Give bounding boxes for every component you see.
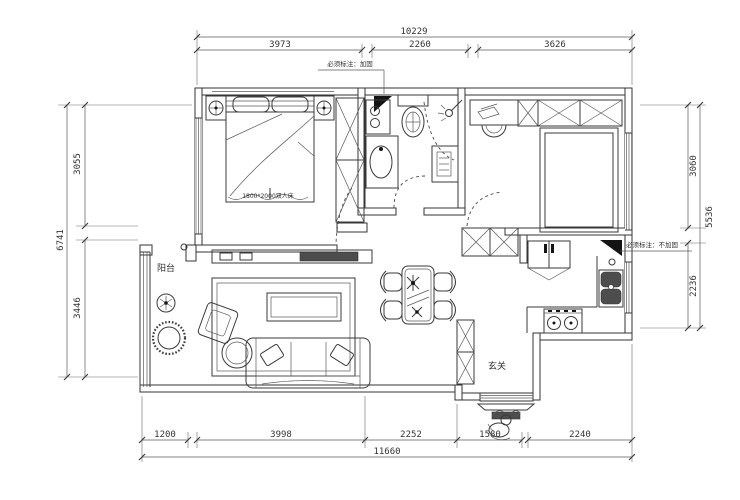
desk-chair <box>482 125 506 137</box>
bedroom-door-arc <box>336 188 352 243</box>
stove <box>544 309 582 333</box>
toilet <box>398 95 428 137</box>
dim-bot-3: 2252 <box>400 430 422 440</box>
study-door-arc <box>467 192 502 226</box>
dim-chain-top: 10229 3973 2260 3626 <box>194 27 635 85</box>
dim-bot-5: 2240 <box>569 430 591 440</box>
note-right-label: 必须标注：不加固 <box>626 240 678 249</box>
dim-right-2: 2236 <box>689 275 699 297</box>
entrance-label: 玄关 <box>488 360 506 372</box>
shoe-cabinet <box>457 320 474 384</box>
room-study <box>467 100 622 232</box>
dim-top-3: 3626 <box>544 40 566 50</box>
kitchen-sink <box>599 270 623 307</box>
bathroom-door-arc <box>394 176 426 208</box>
dim-top-overall: 10229 <box>400 27 427 37</box>
room-living <box>197 250 372 388</box>
walls <box>140 88 632 400</box>
dim-bot-1: 1200 <box>154 430 176 440</box>
dim-bot-2: 3998 <box>270 430 292 440</box>
window-balcony-left <box>140 252 150 387</box>
balcony-chair <box>153 322 185 354</box>
dim-chain-left: 6741 3055 3446 <box>56 102 192 380</box>
floor-plan-canvas: 10229 3973 2260 3626 1200 3998 2252 1580… <box>0 0 740 500</box>
dim-left-overall: 6741 <box>56 229 66 251</box>
side-table <box>222 338 252 368</box>
bed <box>226 96 314 202</box>
room-balcony: 阳台 <box>153 262 185 354</box>
dim-top-1: 3973 <box>269 40 291 50</box>
dim-right-overall: 5536 <box>705 206 715 228</box>
desk <box>470 100 518 137</box>
armchair <box>197 302 239 345</box>
shower-door-arc <box>424 102 454 160</box>
floor-plan-page: 10229 3973 2260 3626 1200 3998 2252 1580… <box>0 0 740 500</box>
dim-left-1: 3055 <box>73 153 83 175</box>
nightstand-right <box>314 96 334 120</box>
fridge <box>528 241 570 280</box>
dim-top-2: 2260 <box>409 40 431 50</box>
tatami-bed <box>540 128 618 232</box>
dim-chain-right: 5536 3060 2236 <box>640 102 715 331</box>
window-kitchen-right <box>625 262 632 313</box>
dim-right-1: 3060 <box>689 155 699 177</box>
room-bedroom: 1800*2000双人床 <box>206 96 364 243</box>
coffee-table <box>267 293 341 321</box>
dining-area <box>381 266 456 324</box>
room-kitchen <box>462 228 623 333</box>
balcony-label: 阳台 <box>157 262 175 274</box>
window-bedroom-left <box>195 118 202 234</box>
window-study-right <box>625 133 632 230</box>
balcony-plant-icon <box>157 294 175 312</box>
reinforce-marker-top <box>374 96 392 112</box>
dim-left-2: 3446 <box>73 297 83 319</box>
room-bathroom <box>366 95 462 208</box>
vanity-sink <box>366 136 398 188</box>
reinforce-marker-kitchen <box>600 240 622 256</box>
shower-tray <box>432 146 458 182</box>
dim-bot-4: 1580 <box>479 430 501 440</box>
sofa <box>246 338 370 388</box>
wardrobe-study <box>518 100 622 126</box>
note-top-label: 必须标注：加固 <box>327 59 373 68</box>
dining-table <box>402 266 434 324</box>
nightstand-left <box>206 96 226 120</box>
dim-bottom-overall: 11660 <box>373 447 400 457</box>
entry-area: 玄关 <box>457 320 534 440</box>
dim-chain-bottom: 1200 3998 2252 1580 2240 11660 <box>139 344 635 462</box>
bed-label: 1800*2000双人床 <box>242 192 294 200</box>
